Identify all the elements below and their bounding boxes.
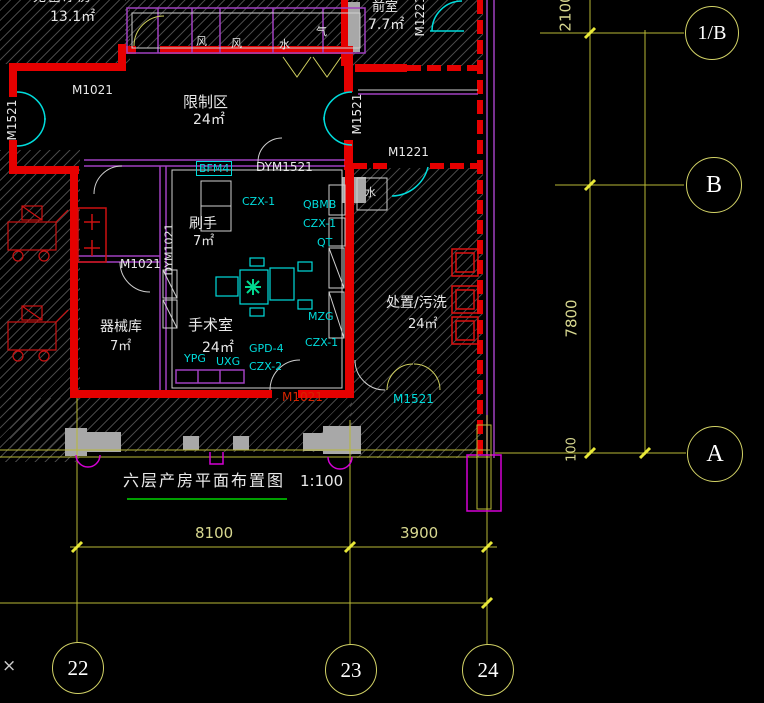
room-area-scrub: 7㎡ [193,235,214,248]
room-area-restricted: 24㎡ [193,113,225,127]
room-area-operating: 24㎡ [202,341,234,355]
room-label-sterile: 无菌净房 [33,0,93,4]
floor-plan-canvas: 无菌净房 13.1㎡ 前室 7.7㎡ 限制区 24㎡ 刷手 7㎡ 器械库 7㎡ … [0,0,764,703]
grid-bubble-1b: 1/B [685,6,739,60]
room-label-scrub: 刷手 [189,217,217,231]
dimension-3900: 3900 [400,526,438,541]
shaft-label-wind-1: 风 [196,36,207,47]
equipment-label-czx2: CZX-2 [249,361,282,372]
operating-table [216,258,312,316]
door-label-m1021-scrub: M1021 [120,258,161,270]
room-area-anteroom: 7.7㎡ [368,18,404,32]
equipment-label-ypg: YPG [184,353,206,364]
grid-bubble-23: 23 [325,644,377,696]
equipment-label-czx1-b: CZX-1 [303,218,336,229]
room-area-sterile: 13.1㎡ [50,10,95,24]
dimension-100: 100 [566,435,579,465]
room-area-instrument: 7㎡ [110,340,131,353]
shaft-label-gas: 气 [316,26,327,37]
grid-bubble-a: A [687,426,743,482]
scrub-sink-unit [78,208,106,262]
door-label-m1021-or: M1021 [282,391,323,403]
drawing-scale: 1:100 [300,474,343,489]
room-label-restricted: 限制区 [183,95,228,110]
equipment-label-mzg: MZG [308,311,334,322]
room-label-instrument: 器械库 [100,320,142,334]
room-area-disposal: 24㎡ [408,318,438,331]
red-walls [9,0,407,398]
shaft-label-water-2: 水 [365,187,376,198]
equipment-label-gpd4: GPD-4 [249,343,284,354]
door-label-m1021-top: M1021 [72,84,113,96]
equipment-label-qt: QT [317,237,332,248]
equipment-label-bfm4: BFM4 [196,161,232,176]
door-arcs-yellow [134,16,440,390]
door-label-m1521-left: M1521 [6,98,18,142]
room-label-operating: 手术室 [188,318,233,333]
grid-bubble-24: 24 [462,644,514,696]
pier-inner-line [477,425,491,509]
dirty-wash-fixtures [452,249,478,344]
door-label-dym1521: DYM1521 [256,161,313,173]
door-label-m1221-mid: M1221 [388,146,429,158]
drawing-title: 六层产房平面布置图 [123,473,285,489]
title-underline [127,498,287,500]
equipment-trolleys [8,206,68,361]
room-label-anteroom: 前室 [372,1,398,14]
x-mark: × [2,658,16,675]
operating-lamp-star [245,279,261,295]
shaft-label-wind-2: 风 [231,38,242,49]
grid-bubble-b: B [686,157,742,213]
room-label-disposal: 处置/污洗 [386,296,447,310]
door-label-m1521-right: M1521 [351,92,363,136]
dimension-7800: 7800 [565,297,580,341]
shaft-label-water-1: 水 [279,39,290,50]
door-label-m1521-bottom: M1521 [393,393,434,405]
equipment-label-czx1-a: CZX-1 [242,196,275,207]
door-label-m1221-top: M1221 [414,0,426,38]
grid-bubble-22: 22 [52,642,104,694]
dimension-2100: 2100 [559,0,574,33]
door-label-dym1021: DYM1021 [164,222,175,278]
equipment-label-czx1-c: CZX-1 [305,337,338,348]
dimension-8100: 8100 [195,526,233,541]
equipment-label-uxg: UXG [216,356,240,367]
equipment-label-qbmb: QBMB [303,199,336,210]
